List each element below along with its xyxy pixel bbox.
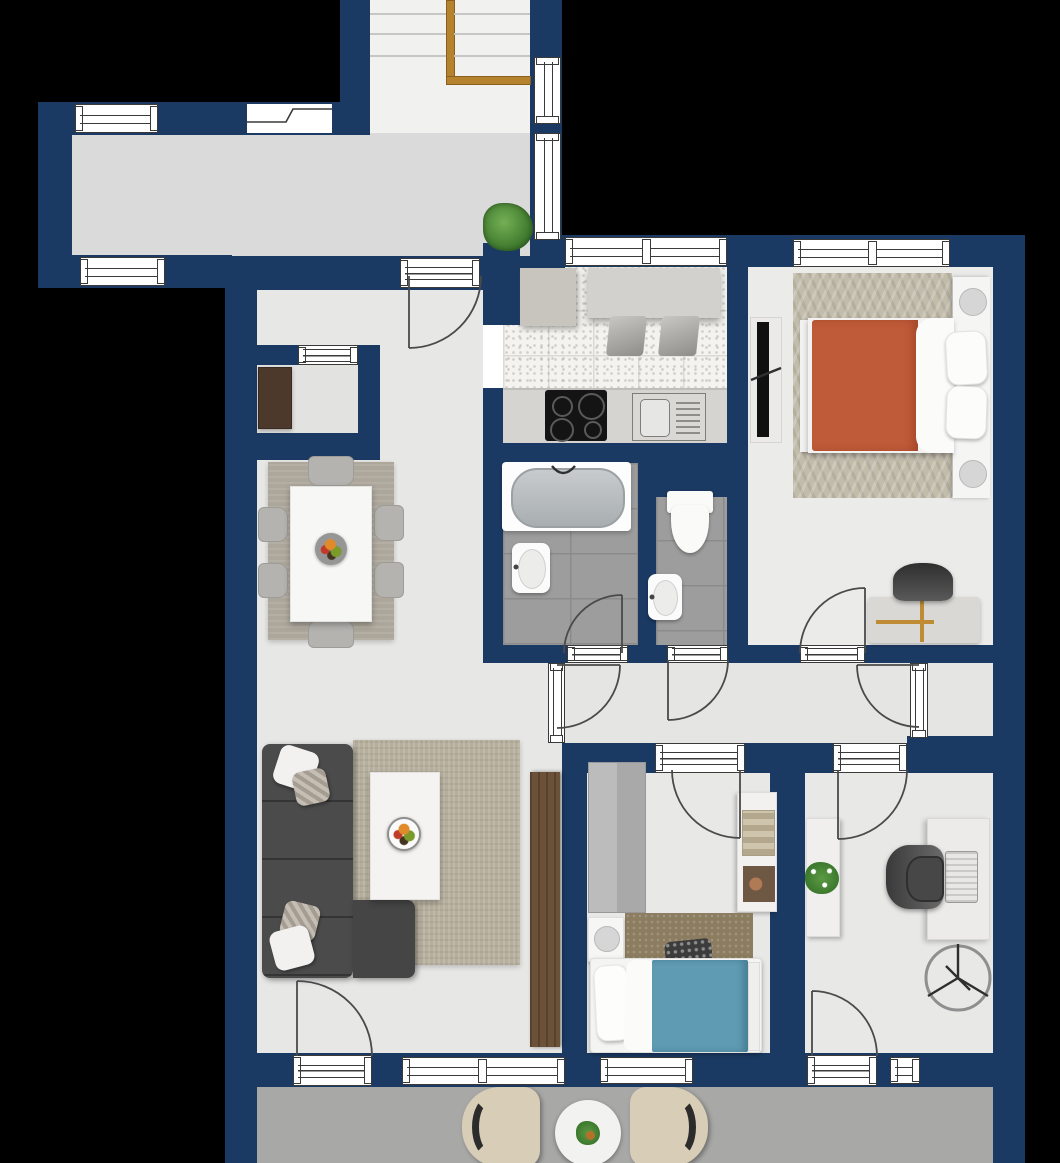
living-kids-wall: [562, 743, 587, 1053]
sofa-pillow-gray-1: [291, 767, 331, 807]
office-chair-seat: [906, 856, 944, 902]
office-balcony-window: [890, 1057, 920, 1084]
stair-rail-vertical: [446, 0, 455, 84]
kids-wardrobe: [588, 762, 646, 913]
balcony-armchair-1-back: [472, 1097, 506, 1157]
kitchen-hatch-opening: [483, 325, 503, 388]
dining-chair-right-2: [374, 562, 404, 598]
kids-shelf-books: [742, 810, 775, 856]
sofa-chaise: [353, 900, 415, 978]
wc-door-frame: [667, 645, 728, 663]
kitchen-sink-basin: [640, 399, 670, 437]
balcony-plant: [576, 1121, 600, 1145]
kids-balcony-window: [600, 1057, 693, 1084]
hall-right-window: [534, 133, 561, 240]
corridor-floor: [565, 663, 910, 743]
kids-lamp: [594, 926, 620, 952]
cooktop-burner-3: [550, 418, 574, 442]
bed-pillow-1: [945, 330, 989, 386]
corridor-bottom-wall-c: [907, 736, 993, 773]
hall-plant: [483, 203, 533, 251]
office-door-frame: [833, 743, 907, 773]
bathroom-washbasin-bowl: [518, 549, 546, 589]
corridor-top-wall-d: [865, 645, 993, 663]
corridor-top-wall-a: [483, 645, 567, 663]
hall-top-window: [75, 104, 158, 133]
hall-bottom-window: [80, 257, 165, 286]
bathtub-basin: [511, 468, 625, 528]
kitchen-bath-wall: [483, 443, 748, 463]
bedroom-door-frame: [800, 645, 865, 663]
entry-cabinet: [258, 367, 292, 429]
corridor-top-wall-b: [628, 645, 667, 663]
bed-pillow-2: [945, 385, 988, 439]
kitchen-breakfast-bar: [588, 268, 720, 318]
kitchen-bedroom-wall: [727, 235, 748, 663]
kitchen-stool-1: [606, 316, 647, 356]
corridor-door-frame: [548, 663, 565, 743]
bath-wc-wall: [638, 443, 656, 662]
cooktop-burner-4: [584, 421, 602, 439]
dining-chair-bottom: [308, 620, 354, 648]
kids-bed-footboard: [748, 962, 760, 1051]
hall-floor: [72, 133, 530, 258]
dining-chair-top: [308, 456, 354, 486]
dining-chair-left-2: [258, 563, 288, 598]
cooktop-burner-2: [578, 393, 605, 420]
entrance-door-frame: [400, 258, 480, 288]
bedroom-desk-chair: [893, 563, 953, 601]
niche-opening-frame: [298, 345, 358, 365]
wc-washbasin-bowl: [653, 580, 678, 616]
kitchen-wall-corner: [483, 243, 520, 325]
kitchen-corner-counter: [520, 268, 576, 326]
living-balcony-window: [402, 1057, 565, 1085]
living-balcony-door-frame: [293, 1055, 372, 1086]
kids-shelf-picture: [743, 866, 775, 902]
balcony-armchair-2-back: [662, 1097, 696, 1157]
apartment-right-wall: [993, 235, 1025, 1163]
living-floor-b: [483, 662, 548, 743]
corridor-top-wall-c: [728, 645, 800, 663]
balcony-floor: [257, 1087, 993, 1163]
living-fruit-bowl: [387, 817, 421, 851]
bedroom-desk-leg-v: [920, 600, 924, 642]
kitchen-sink-drainboard: [676, 400, 700, 434]
closet-floor: [928, 663, 993, 740]
bathroom-door-frame: [567, 645, 628, 663]
dining-fruit-bowl: [315, 533, 347, 565]
kitchen-stool-2: [658, 316, 700, 356]
office-plant: [805, 862, 839, 894]
bedroom-lamp-2: [959, 460, 987, 488]
dining-chair-left-1: [258, 507, 288, 542]
cooktop-burner-1: [552, 396, 573, 417]
apartment-left-wall: [225, 256, 257, 1163]
office-laptop: [945, 851, 978, 903]
kitchen-left-wall: [483, 388, 503, 662]
dining-chair-right-1: [374, 505, 404, 541]
hall-top-opening: [247, 104, 332, 133]
kitchen-window: [565, 237, 727, 266]
bedroom-desk-leg-h: [876, 620, 934, 624]
bed-blanket-orange: [812, 320, 918, 451]
kids-bed-blanket: [652, 960, 748, 1052]
stairs-window: [534, 57, 561, 124]
bedroom-window: [793, 239, 950, 267]
kids-door-frame: [655, 743, 745, 773]
living-tall-wardrobe: [530, 772, 560, 1047]
closet-door-frame: [910, 663, 928, 738]
tv: [757, 322, 769, 437]
office-balcony-door-frame: [807, 1055, 877, 1086]
stair-rail-horizontal: [446, 76, 531, 85]
bedroom-lamp-1: [959, 288, 987, 316]
stairs-left-wall: [340, 0, 370, 105]
floor-plan: [0, 0, 1060, 1163]
